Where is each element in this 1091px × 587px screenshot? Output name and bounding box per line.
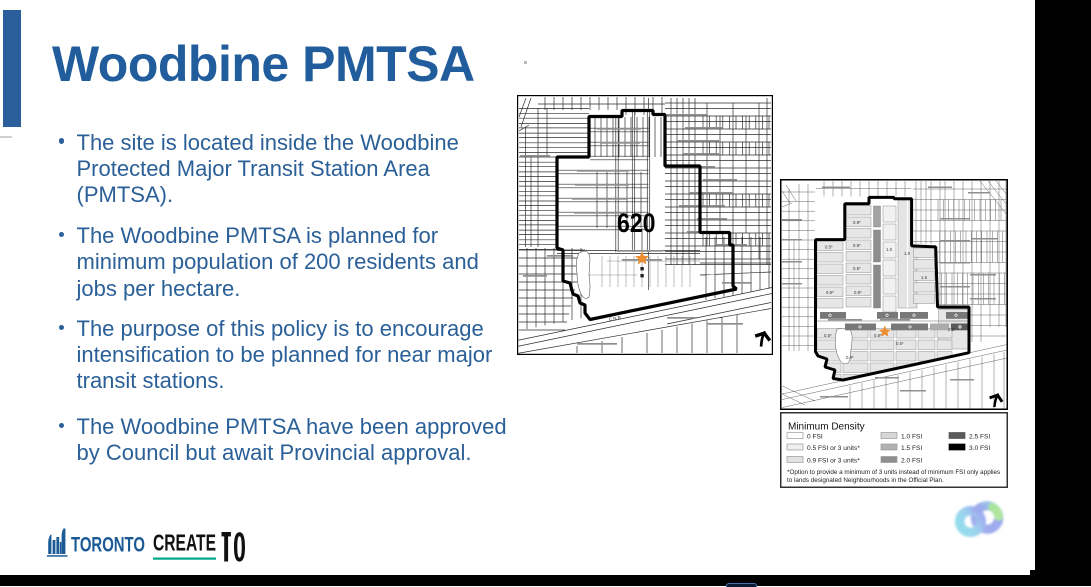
svg-text:1.5: 1.5: [921, 275, 928, 280]
svg-text:0.9 FSI or 3 units*: 0.9 FSI or 3 units*: [807, 457, 860, 464]
svg-text:1.0: 1.0: [904, 251, 911, 256]
svg-text:2.5 FSI: 2.5 FSI: [969, 433, 990, 440]
svg-text:0.9*: 0.9*: [854, 290, 862, 295]
svg-text:0 FSI: 0 FSI: [807, 433, 823, 440]
svg-text:2.5*: 2.5*: [948, 327, 956, 332]
svg-text:0.9*: 0.9*: [853, 243, 861, 248]
svg-text:0.9*: 0.9*: [826, 290, 834, 295]
svg-text:1.0 FSI: 1.0 FSI: [901, 433, 922, 440]
svg-text:0.9*: 0.9*: [853, 220, 861, 225]
svg-text:CREATE: CREATE: [153, 530, 216, 556]
svg-text:3.0 FSI: 3.0 FSI: [969, 445, 990, 452]
svg-text:0.5*: 0.5*: [825, 245, 833, 250]
svg-text:0.5*: 0.5*: [896, 341, 904, 346]
svg-text:1.0: 1.0: [886, 247, 893, 252]
svg-text:2.0 FSI: 2.0 FSI: [901, 457, 922, 464]
svg-text:TORONTO: TORONTO: [71, 533, 145, 557]
svg-text:0.5*: 0.5*: [824, 333, 832, 338]
svg-text:0.5*: 0.5*: [853, 266, 861, 271]
svg-text:Minimum Density: Minimum Density: [788, 422, 865, 433]
svg-text:0.9*: 0.9*: [846, 355, 854, 360]
svg-text:to lands designated Neighbourh: to lands designated Neighbourhoods in th…: [787, 477, 944, 484]
svg-text:620: 620: [617, 207, 656, 238]
svg-text:*Option to provide a minimum o: *Option to provide a minimum of 3 units …: [787, 469, 1000, 476]
svg-text:0.5 FSI or 3 units*: 0.5 FSI or 3 units*: [807, 445, 860, 452]
svg-text:1.5 FSI: 1.5 FSI: [901, 445, 922, 452]
svg-text:0.9*: 0.9*: [874, 333, 882, 338]
